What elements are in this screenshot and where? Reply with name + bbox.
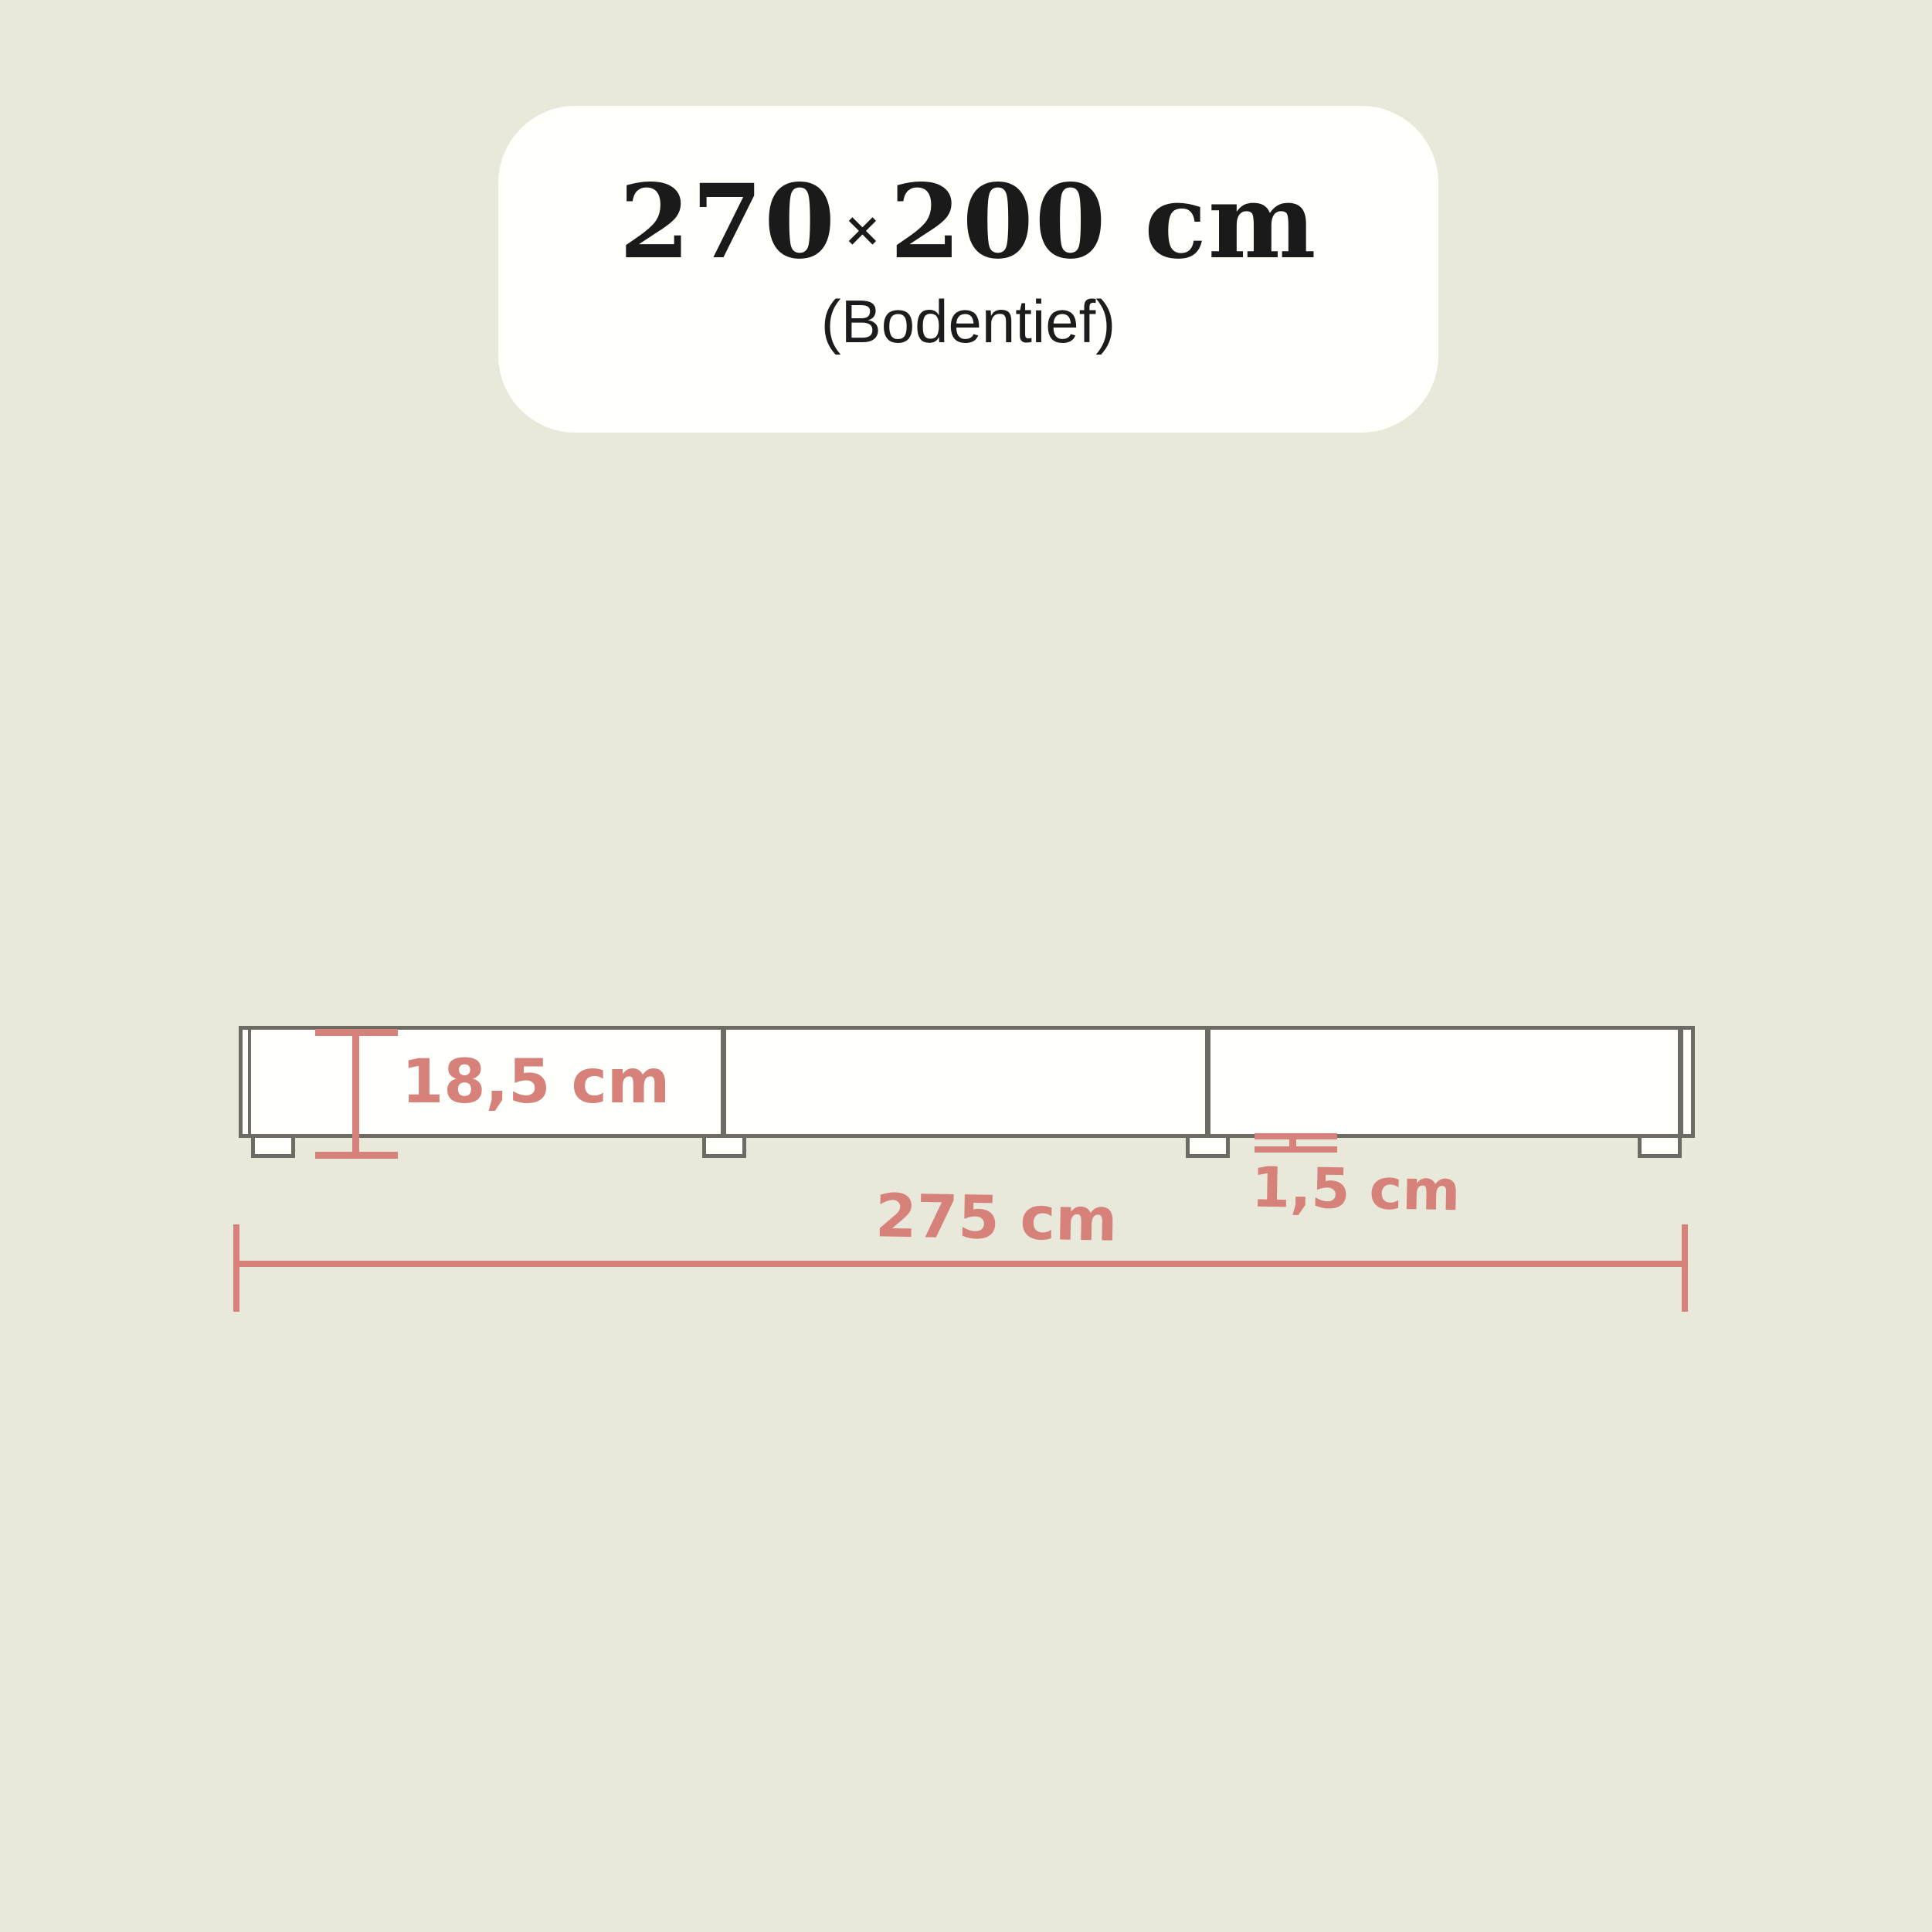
bed-right-panel-line	[1678, 1030, 1683, 1136]
width-dimension-right-tick	[1682, 1224, 1688, 1312]
width-dimension-left-tick	[233, 1224, 239, 1312]
bed-foot-3	[1186, 1134, 1230, 1158]
size-card: 270×200 cm (Bodentief)	[498, 106, 1438, 433]
size-title: 270×200 cm	[498, 171, 1438, 273]
bed-foot-1	[251, 1134, 295, 1158]
bed-foot-2	[702, 1134, 746, 1158]
foot-height-bottom-cap	[1255, 1146, 1337, 1153]
size-width-value: 270	[620, 162, 837, 282]
bed-dimension-diagram: 270×200 cm (Bodentief) 18,5 cm 1,5 cm 27…	[0, 0, 1932, 1932]
multiplication-sign: ×	[843, 202, 884, 257]
width-dimension-label: 275 cm	[874, 1187, 1118, 1250]
width-dimension-line	[236, 1261, 1686, 1267]
height-dimension-stem	[352, 1034, 359, 1157]
height-dimension-label: 18,5 cm	[402, 1052, 670, 1112]
bed-divider-1	[721, 1030, 726, 1136]
height-dimension-bottom-cap	[315, 1152, 398, 1159]
size-depth-value: 200 cm	[890, 162, 1318, 282]
foot-height-label: 1,5 cm	[1251, 1160, 1461, 1219]
bed-left-panel-line	[248, 1030, 251, 1134]
bed-divider-2	[1205, 1030, 1210, 1136]
size-subtitle: (Bodentief)	[498, 291, 1438, 351]
bed-foot-4	[1638, 1134, 1682, 1158]
